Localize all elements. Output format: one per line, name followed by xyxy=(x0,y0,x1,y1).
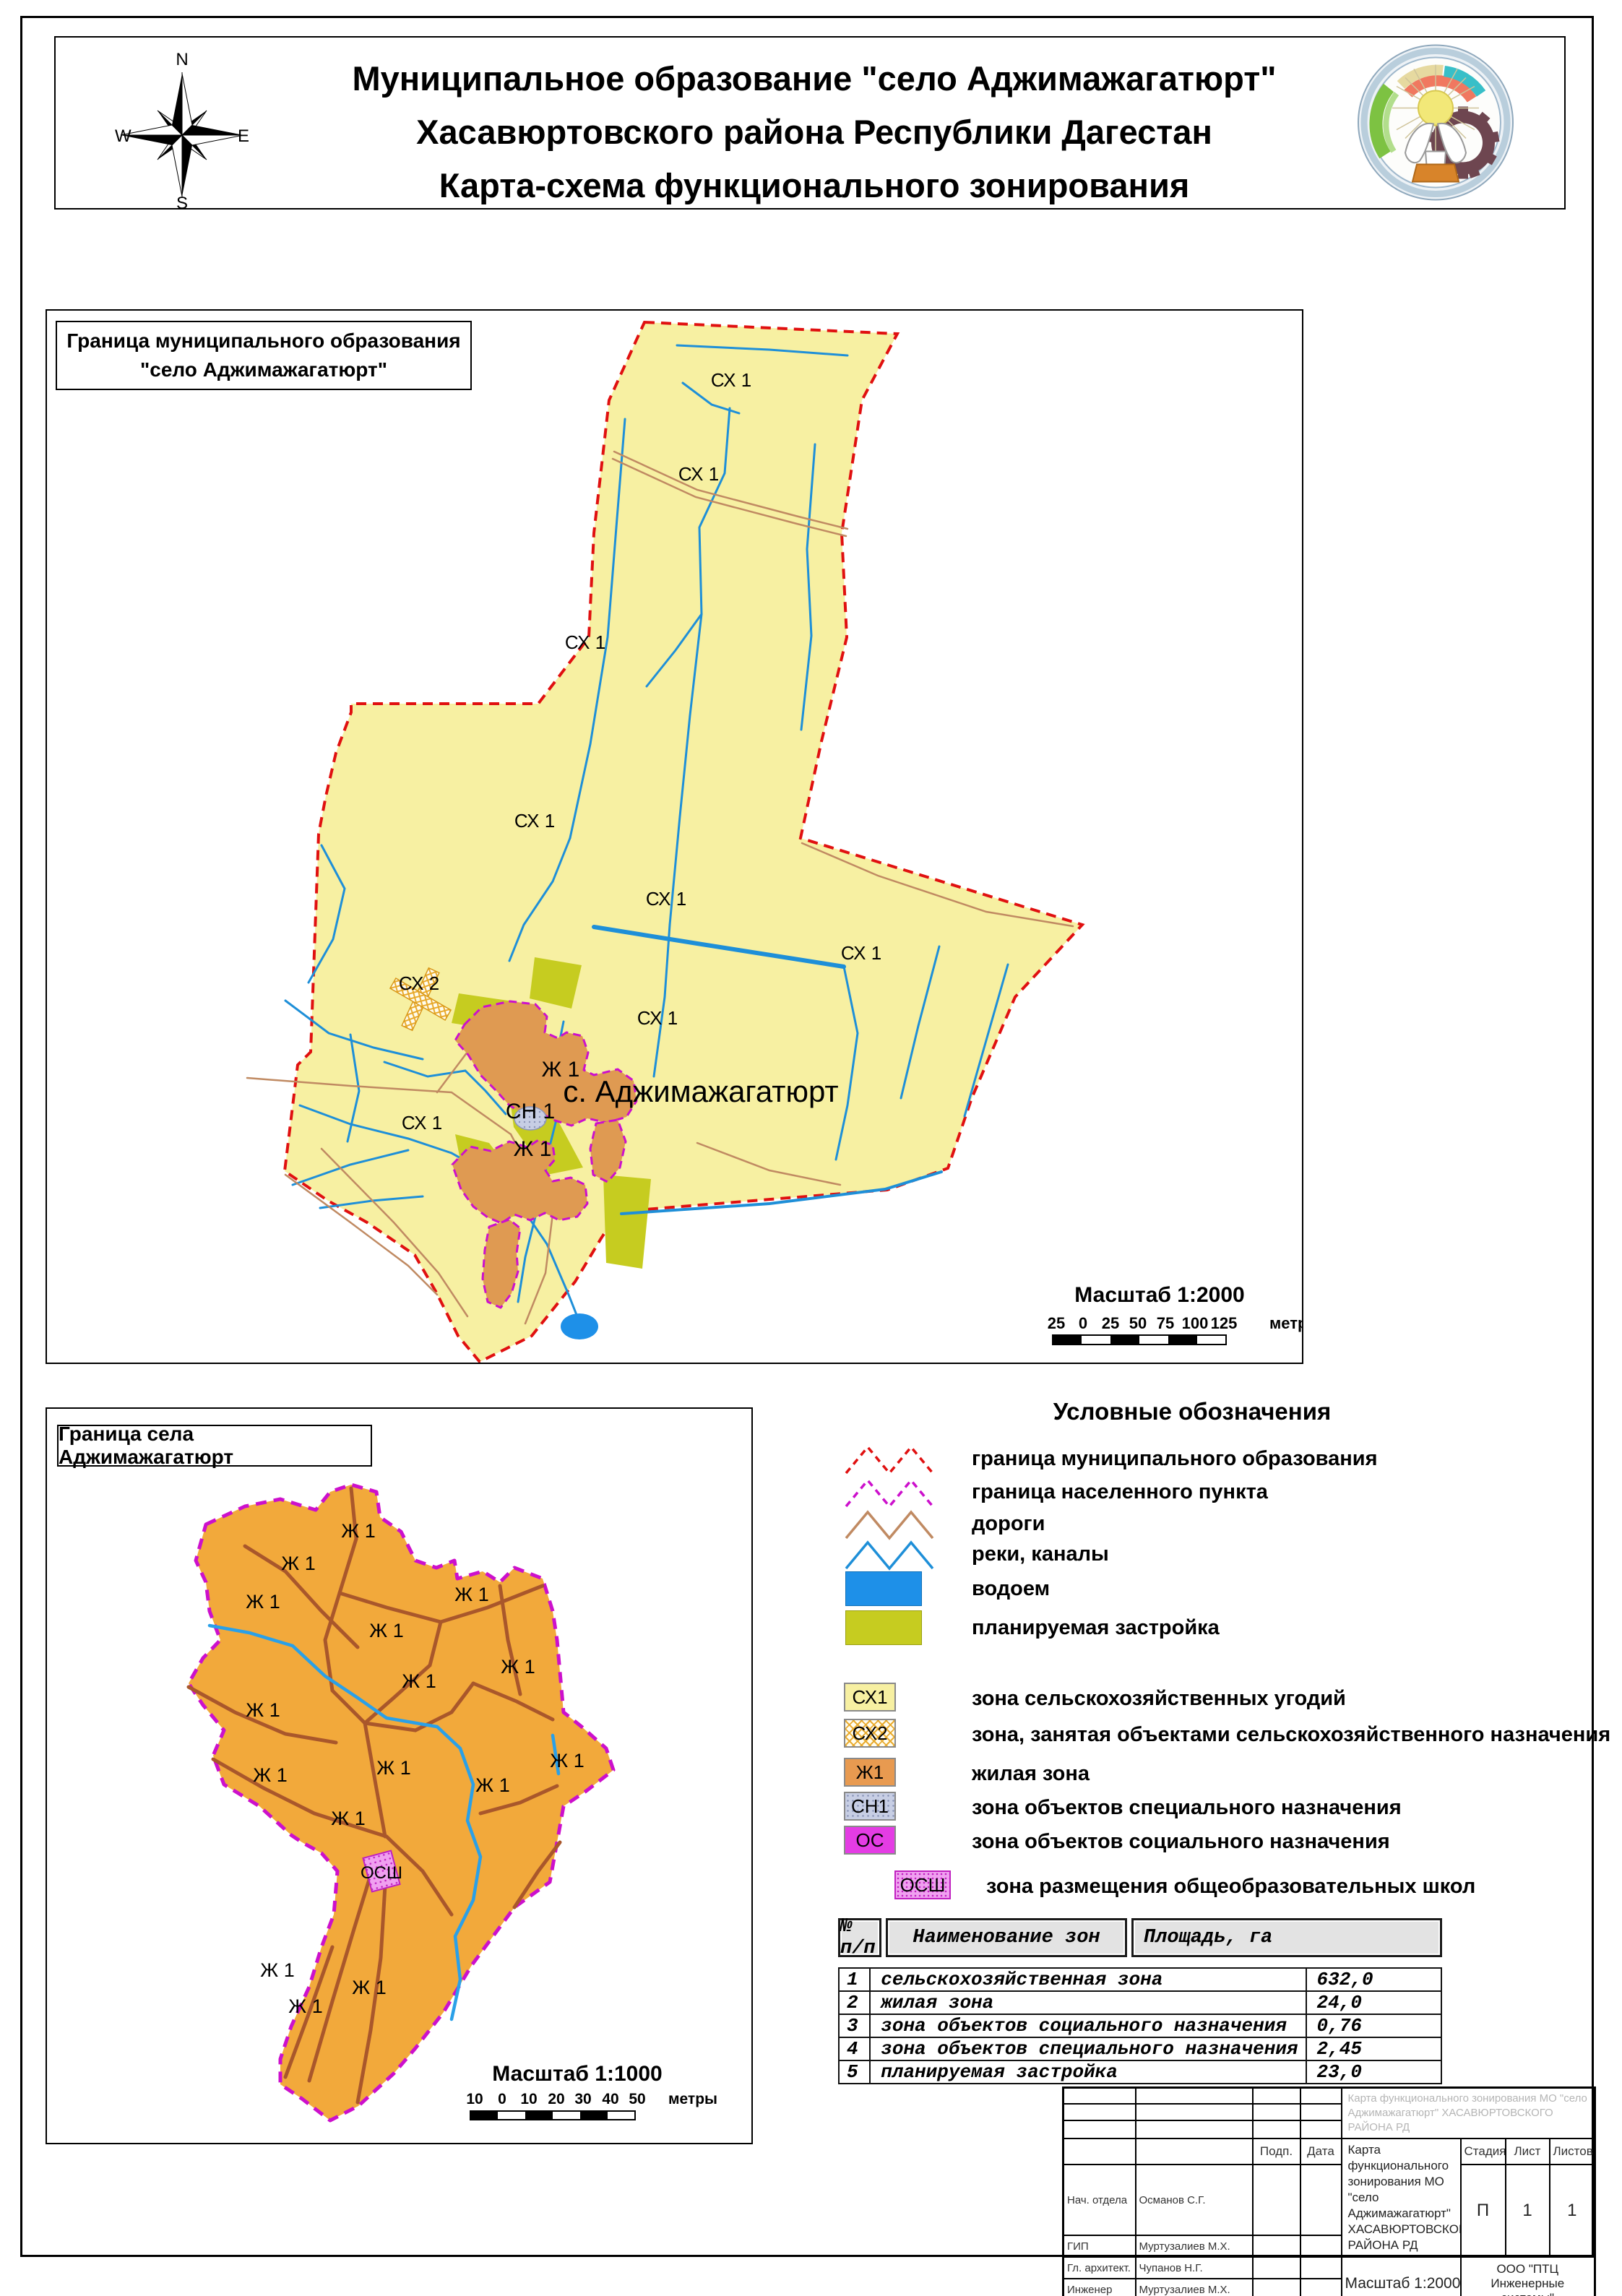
zone-label: Ж 1 xyxy=(475,1774,509,1796)
stamp-sheets-label: Листов xyxy=(1550,2139,1595,2165)
stamp-organization: ООО "ПТЦ Инженерные системы" xyxy=(1461,2257,1595,2296)
svg-text:0: 0 xyxy=(498,2091,506,2107)
legend-title: Условные обозначения xyxy=(816,1398,1568,1425)
zone-label: Ж 1 xyxy=(253,1764,287,1786)
svg-text:50: 50 xyxy=(629,2091,645,2107)
legend-zone-osh: ОСШ зона размещения общеобразовательных … xyxy=(816,1869,1594,1904)
zone-label: Ж 1 xyxy=(341,1520,375,1542)
stamp-scale-note: Масштаб 1:2000 xyxy=(1342,2257,1461,2296)
map-frame-label-line2: "село Аджимажагатюрт" xyxy=(57,355,470,384)
zones-table-body: 1 сельскохозяйственная зона 632,0 2 жила… xyxy=(838,1967,1442,2084)
zone-label: Ж 1 xyxy=(376,1757,410,1779)
zone-label: СХ 1 xyxy=(711,369,751,391)
stamp-role: Инженер xyxy=(1064,2279,1136,2296)
legend: Условные обозначения граница муниципальн… xyxy=(816,1398,1594,1907)
svg-text:Масштаб 1:1000: Масштаб 1:1000 xyxy=(492,2062,662,2086)
svg-text:100: 100 xyxy=(1182,1314,1209,1332)
zh1-swatch: Ж1 xyxy=(844,1758,896,1787)
zone-label: СХ 1 xyxy=(841,942,881,964)
svg-text:S: S xyxy=(176,194,188,210)
os-swatch: ОС xyxy=(844,1826,896,1855)
banner-shape xyxy=(1412,165,1459,182)
zone-label: Ж 1 xyxy=(369,1620,403,1641)
map-frame-label-line1: Граница муниципального образования xyxy=(57,327,470,355)
legend-zone-os: ОС зона объектов социального назначения xyxy=(816,1824,1594,1859)
zone-label: СХ 1 xyxy=(637,1007,678,1029)
svg-text:Масштаб 1:2000: Масштаб 1:2000 xyxy=(1074,1283,1244,1307)
scale-bar-main: Масштаб 1:2000 25 0 25 50 75 100 125 мет… xyxy=(1048,1283,1302,1345)
legend-zone-sn1: СН1 зона объектов специального назначени… xyxy=(816,1790,1594,1825)
stamp-name: Муртузалиев М.Х. xyxy=(1136,2279,1253,2296)
table-header-num: № п/п xyxy=(838,1918,881,1957)
svg-text:метры: метры xyxy=(1269,1314,1302,1332)
sun-icon xyxy=(1392,65,1479,152)
svg-text:50: 50 xyxy=(1129,1314,1147,1332)
municipal-boundary-icon xyxy=(844,1441,952,1476)
stamp-watermark-title: Карта функционального зонирования МО "се… xyxy=(1342,2088,1595,2139)
village-map-frame-label-text: Граница села Аджимажагатюрт xyxy=(59,1423,371,1469)
stamp-date-col: Дата xyxy=(1300,2139,1342,2165)
scale-bar-village: Масштаб 1:1000 10 0 10 20 30 40 50 метры xyxy=(466,2062,717,2120)
svg-text:25: 25 xyxy=(1102,1314,1119,1332)
stamp-role: Нач. отдела xyxy=(1064,2165,1136,2235)
table-row: 3 зона объектов социального назначения 0… xyxy=(839,2014,1441,2037)
page-title-line1: Муниципальное образование "село Аджимажа… xyxy=(294,52,1334,105)
village-map-canvas: Ж 1 Ж 1 Ж 1 Ж 1 Ж 1 Ж 1 Ж 1 Ж 1 Ж 1 Ж 1 … xyxy=(47,1409,751,2143)
zone-label: Ж 1 xyxy=(246,1591,280,1613)
sn1-swatch: СН1 xyxy=(844,1792,896,1821)
svg-text:метры: метры xyxy=(668,2091,717,2107)
pond-swatch xyxy=(845,1571,922,1606)
sx2-swatch: СХ2 xyxy=(844,1719,896,1748)
stamp-sign-col: Подп. xyxy=(1253,2139,1300,2165)
zone-label: СХ 1 xyxy=(646,888,686,910)
svg-text:30: 30 xyxy=(574,2091,591,2107)
svg-text:E: E xyxy=(238,126,249,146)
pond xyxy=(561,1313,598,1339)
legend-item-rivers: реки, каналы xyxy=(816,1537,1594,1571)
svg-text:40: 40 xyxy=(602,2091,618,2107)
village-map-frame-label: Граница села Аджимажагатюрт xyxy=(57,1425,372,1467)
stamp-name: Османов С.Г. xyxy=(1136,2165,1253,2235)
zone-label: Ж 1 xyxy=(352,1977,386,1998)
settlement-name-label: с. Аджимажагатюрт xyxy=(563,1074,838,1108)
svg-text:0: 0 xyxy=(1079,1314,1087,1332)
svg-text:10: 10 xyxy=(466,2091,483,2107)
svg-text:N: N xyxy=(176,50,188,69)
stamp-role: Гл. архитект. xyxy=(1064,2257,1136,2279)
stamp-sheet-value: 1 xyxy=(1506,2165,1550,2257)
stamp-project-title: Карта функционального зонирования МО "се… xyxy=(1342,2139,1461,2257)
zone-label: СХ 1 xyxy=(565,631,605,653)
district-emblem-logo xyxy=(1356,41,1515,204)
zone-label: Ж 1 xyxy=(281,1553,315,1574)
legend-item-municipal-boundary: граница муниципального образования xyxy=(816,1441,1594,1476)
legend-item-roads: дороги xyxy=(816,1506,1594,1541)
village-boundary-map: Ж 1 Ж 1 Ж 1 Ж 1 Ж 1 Ж 1 Ж 1 Ж 1 Ж 1 Ж 1 … xyxy=(46,1407,753,2144)
page-title-line3: Карта-схема функционального зонирования xyxy=(294,159,1334,212)
village-area xyxy=(189,1485,613,2120)
municipal-map-canvas: СХ 1 СХ 1 СХ 1 СХ 1 СХ 1 СХ 1 СХ 1 СХ 2 … xyxy=(47,311,1302,1363)
stamp-role: ГИП xyxy=(1064,2235,1136,2257)
table-row: 5 планируемая застройка 23,0 xyxy=(839,2060,1441,2084)
legend-item-settlement-boundary: граница населенного пункта xyxy=(816,1475,1594,1509)
zone-label: СХ 1 xyxy=(678,463,719,485)
table-row: 1 сельскохозяйственная зона 632,0 xyxy=(839,1968,1441,1991)
zone-label: Ж 1 xyxy=(454,1584,488,1605)
stamp-sheet-label: Лист xyxy=(1506,2139,1550,2165)
zone-label: Ж 1 xyxy=(246,1699,280,1721)
legend-item-planned: планируемая застройка xyxy=(816,1610,1594,1645)
stamp-name: Чупанов Н.Г. xyxy=(1136,2257,1253,2279)
zone-label: Ж 1 xyxy=(288,1995,322,2017)
table-header-name: Наименование зон xyxy=(886,1918,1127,1957)
map-frame-label: Граница муниципального образования "село… xyxy=(56,321,472,390)
zone-label: Ж 1 xyxy=(514,1137,552,1161)
planned-swatch xyxy=(845,1610,922,1645)
svg-text:25: 25 xyxy=(1048,1314,1065,1332)
svg-text:75: 75 xyxy=(1157,1314,1174,1332)
zone-label: СХ 1 xyxy=(514,810,555,832)
settlement-boundary-icon xyxy=(844,1475,952,1509)
zone-label: Ж 1 xyxy=(501,1656,535,1678)
municipal-zoning-map: СХ 1 СХ 1 СХ 1 СХ 1 СХ 1 СХ 1 СХ 1 СХ 2 … xyxy=(46,309,1303,1364)
zone-label: СХ 2 xyxy=(399,972,439,994)
rivers-icon xyxy=(844,1537,952,1571)
stamp-sheets-value: 1 xyxy=(1550,2165,1595,2257)
header: N S W E Муниципальное образование "село … xyxy=(54,36,1566,210)
table-row: 2 жилая зона 24,0 xyxy=(839,1991,1441,2014)
legend-zone-sx1: СХ1 зона сельскохозяйственных угодий xyxy=(816,1681,1594,1716)
zone-label: СН 1 xyxy=(506,1100,555,1123)
zone-label: Ж 1 xyxy=(402,1670,436,1692)
legend-zone-sx2: СХ2 зона, занятая объектами сельскохозяй… xyxy=(816,1717,1594,1752)
map-sheet: N S W E Муниципальное образование "село … xyxy=(0,0,1622,2296)
zone-label: Ж 1 xyxy=(550,1750,584,1771)
sx1-swatch: СХ1 xyxy=(844,1683,896,1712)
table-header-area: Площадь, га xyxy=(1131,1918,1442,1957)
svg-text:10: 10 xyxy=(520,2091,537,2107)
school-zone-label: ОСШ xyxy=(361,1863,402,1883)
svg-text:125: 125 xyxy=(1211,1314,1238,1332)
legend-zone-zh1: Ж1 жилая зона xyxy=(816,1756,1594,1791)
zone-label: Ж 1 xyxy=(260,1959,294,1981)
zone-label: Ж 1 xyxy=(331,1808,365,1829)
title-block: Карта функционального зонирования МО "се… xyxy=(1062,2086,1594,2258)
zone-label: СХ 1 xyxy=(402,1112,442,1134)
page-title-line2: Хасавюртовского района Республики Дагест… xyxy=(294,105,1334,159)
page-title: Муниципальное образование "село Аджимажа… xyxy=(294,52,1334,212)
table-row: 4 зона объектов специального назначения … xyxy=(839,2037,1441,2060)
stamp-stage-label: Стадия xyxy=(1461,2139,1506,2165)
svg-text:W: W xyxy=(115,126,131,146)
osh-swatch: ОСШ xyxy=(894,1870,951,1899)
roads-icon xyxy=(844,1506,952,1541)
stamp-stage-value: П xyxy=(1461,2165,1506,2257)
legend-item-pond: водоем xyxy=(816,1571,1594,1606)
svg-text:20: 20 xyxy=(548,2091,564,2107)
stamp-name: Муртузалиев М.Х. xyxy=(1136,2235,1253,2257)
compass-rose-icon: N S W E xyxy=(113,43,251,210)
